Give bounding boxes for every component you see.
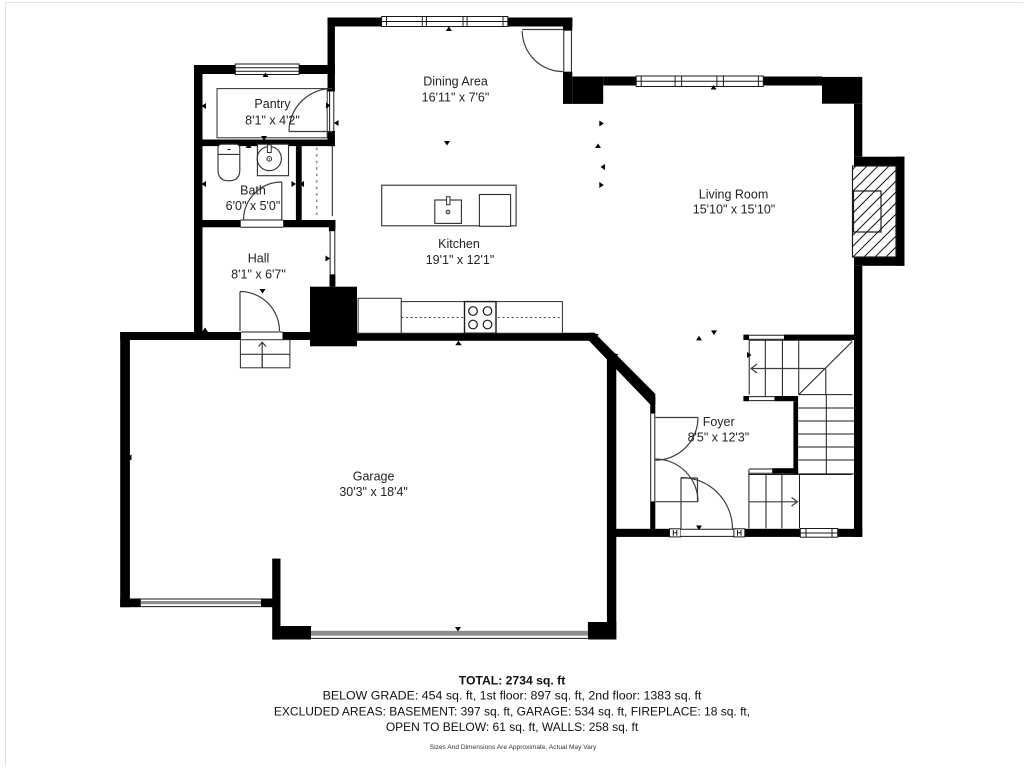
svg-text:Foyer: Foyer (703, 415, 735, 429)
svg-text:Living Room: Living Room (699, 188, 768, 202)
svg-text:BELOW GRADE: 454 sq. ft, 1st f: BELOW GRADE: 454 sq. ft, 1st floor: 897 … (323, 688, 702, 702)
svg-text:15'10" x 15'10": 15'10" x 15'10" (693, 203, 775, 217)
svg-text:8'5" x 12'3": 8'5" x 12'3" (688, 431, 750, 445)
svg-text:30'3" x 18'4": 30'3" x 18'4" (339, 485, 408, 499)
svg-text:Kitchen: Kitchen (438, 237, 480, 251)
svg-text:Hall: Hall (248, 252, 270, 266)
svg-text:6'0" x 5'0": 6'0" x 5'0" (226, 199, 281, 213)
svg-text:Sizes And Dimensions Are Appro: Sizes And Dimensions Are Approximate, Ac… (430, 744, 597, 751)
svg-text:Garage: Garage (353, 470, 395, 484)
svg-text:16'11" x 7'6": 16'11" x 7'6" (422, 91, 490, 105)
svg-text:Pantry: Pantry (254, 97, 291, 111)
svg-text:EXCLUDED AREAS: BASEMENT: 397: EXCLUDED AREAS: BASEMENT: 397 sq. ft, GA… (274, 705, 750, 719)
svg-text:8'1" x 6'7": 8'1" x 6'7" (231, 268, 286, 282)
svg-text:TOTAL: 2734 sq. ft: TOTAL: 2734 sq. ft (459, 674, 566, 688)
svg-text:Dining Area: Dining Area (423, 75, 488, 89)
svg-text:8'1" x 4'2": 8'1" x 4'2" (245, 114, 300, 128)
svg-text:Bath: Bath (240, 184, 266, 198)
svg-text:OPEN TO BELOW: 61 sq. ft, WALL: OPEN TO BELOW: 61 sq. ft, WALLS: 258 sq.… (386, 720, 639, 734)
svg-text:19'1" x 12'1": 19'1" x 12'1" (426, 253, 495, 267)
